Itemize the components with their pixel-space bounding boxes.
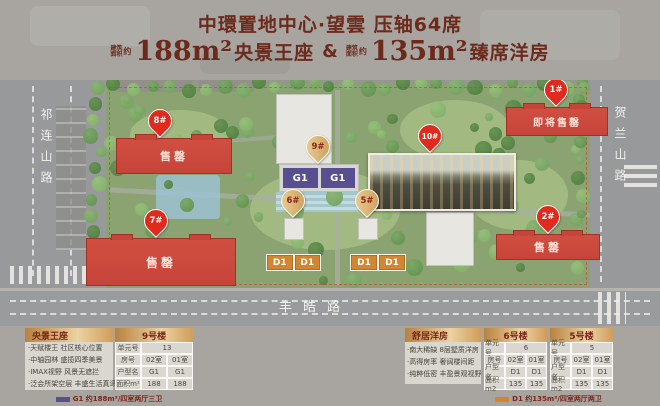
crosswalk [598, 292, 626, 324]
pin-5: 5# [355, 189, 379, 213]
road-bottom-label: 丰皓路 [230, 296, 400, 315]
legend-d1-text: D1 约135m²/四室两厅两卫 [512, 394, 602, 404]
pin-8: 8# [148, 109, 172, 133]
roadside-parking [56, 106, 86, 250]
cell: 01室 [592, 354, 613, 366]
cell: 13 [141, 342, 193, 354]
cell: D1 [571, 366, 592, 378]
area-note-stack: 建筑面积 [110, 46, 122, 58]
pin-10-label: 10# [418, 124, 442, 148]
tree-icon [91, 81, 105, 95]
legend-g1-text: G1 约188m²/四室两厅三卫 [73, 394, 163, 404]
d1-swatch [495, 397, 509, 402]
pin-5-label: 5# [355, 189, 379, 213]
pin-6-label: 6# [281, 189, 305, 213]
building-7-status: 售罄 [146, 254, 176, 271]
tree-icon [89, 97, 103, 111]
road-left-label: 祁连山路 [38, 108, 55, 192]
area1-value: 188m² [135, 38, 232, 65]
building-1-status: 即将售罄 [533, 114, 581, 129]
lane-marking [32, 86, 34, 276]
panel-right-bullets: ·南大稀缺 8层墅质洋房 ·高得房率 奢阔楼间距 ·纯粹低密 丰盈景观视野 [407, 344, 481, 380]
pin-1: 1# [544, 80, 568, 102]
promo-sheet: 中環置地中心·望雲 压轴64席 建筑面积 约 188m² 央景王座 & 建筑面积… [0, 0, 660, 406]
area1-name: 央景王座 [234, 38, 314, 65]
pin-7-label: 7# [144, 209, 168, 233]
cell: G1 [141, 366, 167, 378]
building-6: D1 D1 [266, 254, 321, 271]
area-note: 建筑面积 约 [346, 46, 367, 58]
tree-icon [89, 162, 101, 174]
table-9: 单元号 13 房号 02室 01室 户型名 G1 G1 面积m² 188 188 [115, 342, 193, 390]
unit-d1: D1 [379, 255, 405, 270]
panel-left-title: 央景王座 [25, 328, 113, 342]
ampersand: & [322, 41, 338, 62]
cell: 5 [571, 342, 613, 354]
area2-name: 臻席洋房 [470, 38, 550, 65]
cell: 135 [505, 378, 526, 390]
table-6: 单元号 6 房号 02室 01室 户型名 D1 D1 面积m2 135 135 [484, 342, 547, 390]
cell: 单元号 [115, 342, 141, 354]
unit-d1: D1 [267, 255, 293, 270]
building-8: 售罄 [116, 138, 232, 174]
unit-g1: G1 [283, 168, 318, 188]
panel-left-building: 9号楼 [115, 328, 193, 342]
g1-swatch [56, 397, 70, 402]
road-right-label: 贺兰山路 [612, 106, 629, 190]
cell: G1 [167, 366, 193, 378]
unit-d1: D1 [295, 255, 321, 270]
table-5: 单元号 5 房号 02室 01室 户型名 D1 D1 面积m2 135 135 [550, 342, 613, 390]
panel-left-title-text: 央景王座 [32, 329, 68, 342]
crosswalk [10, 266, 96, 284]
building-2: 售罄 [496, 234, 600, 260]
bullet: ·IMAX视野 风景无遮拦 [28, 366, 112, 378]
bullet: ·泛会所架空层 丰盛生活真谛 [28, 378, 112, 390]
legend-g1: G1 约188m²/四室两厅三卫 [25, 394, 193, 404]
building-8-status: 售罄 [160, 148, 188, 164]
cell: 房号 [115, 354, 141, 366]
tree-icon [92, 176, 107, 191]
cell: 01室 [167, 354, 193, 366]
unit-g1: G1 [321, 168, 356, 188]
pin-2-label: 2# [536, 205, 560, 229]
site-map: 售罄 售罄 即将售罄 售罄 G1 G1 D1 D1 D1 D1 8# [0, 80, 660, 326]
cell: 单元号 [484, 342, 505, 354]
building-2-status: 售罄 [534, 239, 562, 255]
area-note-approx: 约 [123, 46, 131, 57]
pin-10: 10# [418, 124, 442, 148]
pin-8-label: 8# [148, 109, 172, 133]
tree-icon [96, 147, 107, 158]
panel-left-bullets: ·天赋楼王 社区核心位置 ·中轴园林 盛揽四季美景 ·IMAX视野 风景无遮拦 … [28, 342, 112, 390]
bullet: ·纯粹低密 丰盈景观视野 [407, 368, 481, 380]
cell: 面积m² [115, 378, 141, 390]
cell: 02室 [571, 354, 592, 366]
bullet: ·天赋楼王 社区核心位置 [28, 342, 112, 354]
bullet: ·中轴园林 盛揽四季美景 [28, 354, 112, 366]
cell: 户型名 [115, 366, 141, 378]
cell: 188 [141, 378, 167, 390]
pin-1-label: 1# [544, 80, 568, 102]
header-subtitle: 建筑面积 约 188m² 央景王座 & 建筑面积 约 135m² 臻席洋房 [0, 38, 660, 65]
cell: D1 [526, 366, 547, 378]
area2-value: 135m² [371, 38, 468, 65]
cell: 135 [571, 378, 592, 390]
tree-icon [87, 114, 99, 126]
cell: 面积m2 [550, 378, 571, 390]
panel-right-title-text: 舒居洋房 [412, 329, 448, 342]
cell: 188 [167, 378, 193, 390]
pin-7: 7# [144, 209, 168, 233]
unit-d1: D1 [351, 255, 377, 270]
page-title: 中環置地中心·望雲 压轴64席 [0, 10, 660, 37]
rendering-photo [368, 153, 516, 211]
table-5-title: 5号楼 [569, 329, 593, 342]
cell: D1 [592, 366, 613, 378]
cell: 01室 [526, 354, 547, 366]
building-1: 即将售罄 [506, 107, 608, 136]
pin-9: 9# [306, 135, 330, 159]
tree-icon [83, 128, 98, 143]
tree-icon [86, 194, 97, 205]
cell: 135 [592, 378, 613, 390]
table-6-title: 6号楼 [503, 329, 527, 342]
cell: 面积m2 [484, 378, 505, 390]
building-5: D1 D1 [350, 254, 406, 271]
area-note-approx: 约 [359, 46, 367, 57]
pin-9-label: 9# [306, 135, 330, 159]
cell: 135 [526, 378, 547, 390]
bullet: ·高得房率 奢阔楼间距 [407, 356, 481, 368]
cell: 02室 [141, 354, 167, 366]
panel-right-title: 舒居洋房 [405, 328, 481, 342]
panel-left-building-text: 9号楼 [142, 329, 166, 342]
cell: 02室 [505, 354, 526, 366]
building-7: 售罄 [86, 238, 236, 286]
area-note: 建筑面积 约 [110, 46, 131, 58]
cell: 6 [505, 342, 547, 354]
legend-d1: D1 约135m²/四室两厅两卫 [484, 394, 613, 404]
cell: 单元号 [550, 342, 571, 354]
pin-2: 2# [536, 205, 560, 229]
cell: D1 [505, 366, 526, 378]
bullet: ·南大稀缺 8层墅质洋房 [407, 344, 481, 356]
area-note-stack: 建筑面积 [346, 46, 358, 58]
pin-6: 6# [281, 189, 305, 213]
tree-icon [87, 225, 100, 238]
